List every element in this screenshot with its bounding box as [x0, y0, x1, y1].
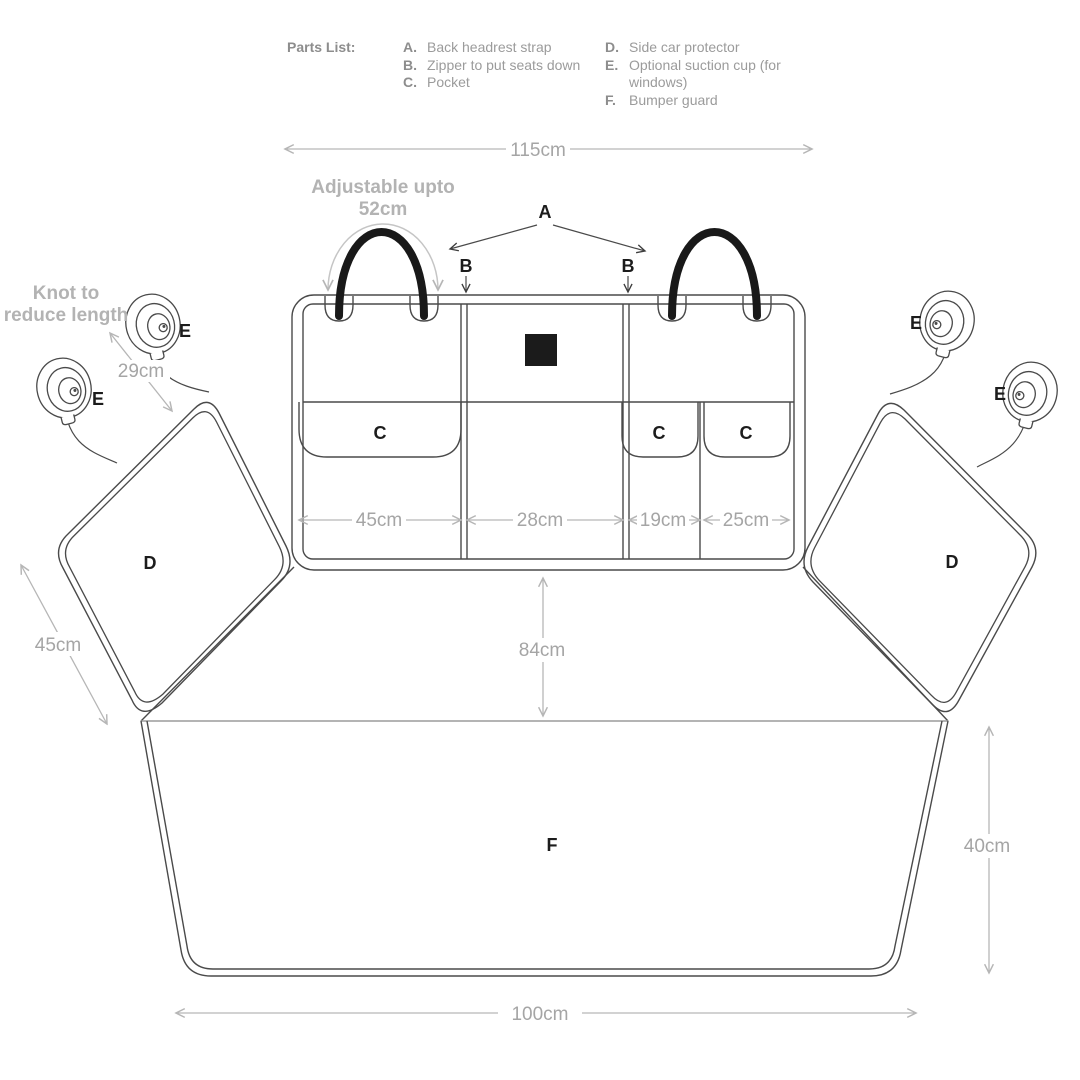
part-label: Back headrest strap	[427, 39, 605, 57]
label-zipper-left: B	[460, 256, 473, 276]
dim-pocket-small1: 19cm	[640, 510, 686, 531]
part-key: F.	[605, 92, 629, 110]
part-label: Pocket	[427, 74, 605, 92]
parts-list-item: F. Bumper guard	[605, 92, 787, 110]
knot-note-line1: Knot to	[33, 283, 99, 304]
label-pointer-arrows	[450, 225, 645, 292]
parts-list-title: Parts List:	[287, 39, 403, 57]
parts-list-item: C. Pocket	[403, 74, 605, 92]
suction-cup-right-upper-icon	[912, 285, 980, 362]
part-label: Optional suction cup (for windows)	[629, 57, 787, 92]
side-protector-right-panel	[804, 403, 1036, 711]
label-pocket-small2: C	[740, 423, 753, 443]
label-side-left: D	[144, 553, 157, 573]
label-side-right: D	[946, 552, 959, 572]
part-key: B.	[403, 57, 427, 75]
dim-pocket-large: 45cm	[356, 510, 402, 531]
dim-middle: 28cm	[517, 510, 563, 531]
label-suction-left-lower: E	[92, 389, 104, 409]
dim-string-length: 29cm	[118, 361, 164, 382]
part-key: D.	[605, 39, 629, 57]
knot-note-line2: reduce length	[4, 305, 129, 326]
side-protector-left-panel	[59, 402, 290, 711]
parts-list-item: E. Optional suction cup (for windows)	[605, 57, 787, 92]
strap-note-line2: 52cm	[359, 199, 408, 220]
strap-note-line1: Adjustable upto	[311, 177, 455, 198]
label-bumper-guard: F	[547, 835, 558, 855]
parts-list: Parts List: A. Back headrest strap B. Zi…	[287, 39, 787, 109]
logo-square	[525, 334, 557, 366]
label-pocket-small1: C	[653, 423, 666, 443]
part-label: Bumper guard	[629, 92, 787, 110]
parts-list-item: D. Side car protector	[605, 39, 787, 57]
label-pocket-large: C	[374, 423, 387, 443]
part-label: Zipper to put seats down	[427, 57, 605, 75]
dim-bumper-height: 40cm	[964, 836, 1010, 857]
label-suction-right-lower: E	[994, 384, 1006, 404]
dim-bottom-width: 100cm	[511, 1004, 568, 1025]
parts-list-column-2: D. Side car protector E. Optional suctio…	[605, 39, 787, 109]
part-label: Side car protector	[629, 39, 787, 57]
diagram-canvas: 115cm Adjustable upto 52cm Knot to reduc…	[0, 0, 1080, 1080]
part-key: A.	[403, 39, 427, 57]
bumper-guard-panel	[141, 721, 948, 976]
suction-cup-left-upper-icon	[120, 288, 188, 365]
parts-list-column-1: A. Back headrest strap B. Zipper to put …	[403, 39, 605, 92]
parts-list-item: B. Zipper to put seats down	[403, 57, 605, 75]
part-key: E.	[605, 57, 629, 92]
car-seat-cover-diagram: 115cm Adjustable upto 52cm Knot to reduc…	[0, 0, 1080, 1080]
dim-top-width: 115cm	[510, 140, 566, 161]
part-key: C.	[403, 74, 427, 92]
parts-list-item: A. Back headrest strap	[403, 39, 605, 57]
dim-seat-depth: 84cm	[519, 640, 565, 661]
suction-cup-left-lower-icon	[31, 352, 99, 429]
label-zipper-right: B	[622, 256, 635, 276]
label-suction-right-upper: E	[910, 313, 922, 333]
dim-pocket-small2: 25cm	[723, 510, 769, 531]
label-headrest-strap: A	[539, 202, 552, 222]
label-suction-left-upper: E	[179, 321, 191, 341]
dim-side-flap: 45cm	[35, 635, 81, 656]
